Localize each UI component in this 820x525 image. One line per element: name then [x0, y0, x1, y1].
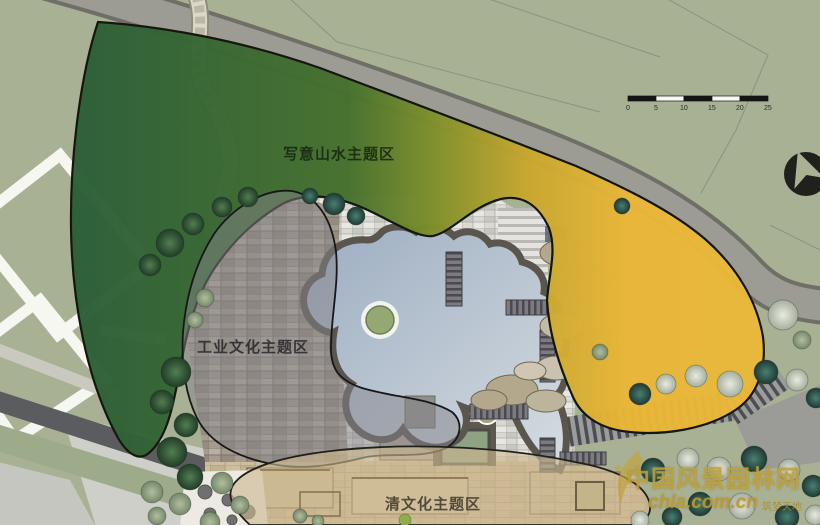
landscape-plan-screenshot: 0 5 10 15 20 25 写意山水主题区 工业文化主题区 清文化主题区 中… — [0, 0, 820, 525]
zone-label-qing: 清文化主题区 — [385, 493, 481, 514]
site-plan-map: 0 5 10 15 20 25 — [0, 0, 820, 525]
svg-text:25: 25 — [764, 105, 772, 112]
svg-text:0: 0 — [626, 105, 630, 112]
svg-text:15: 15 — [708, 105, 716, 112]
svg-text:20: 20 — [736, 105, 744, 112]
zone-label-industrial: 工业文化主题区 — [197, 336, 309, 357]
svg-text:5: 5 — [654, 105, 658, 112]
svg-text:10: 10 — [680, 105, 688, 112]
zone-label-shanshui: 写意山水主题区 — [283, 143, 395, 164]
